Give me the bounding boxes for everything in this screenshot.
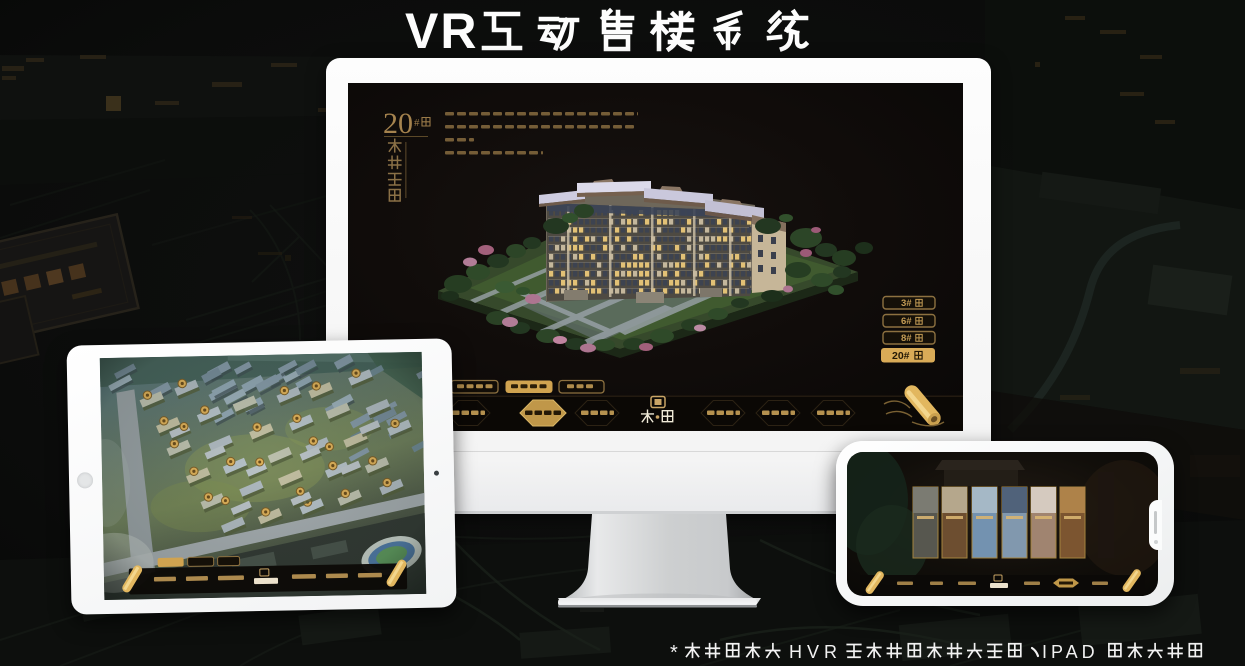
svg-text:IPAD: IPAD bbox=[1042, 642, 1099, 662]
svg-text:#: # bbox=[414, 117, 420, 129]
svg-text:VR: VR bbox=[405, 3, 478, 59]
svg-text:20#: 20# bbox=[892, 350, 910, 362]
svg-text:3#: 3# bbox=[901, 298, 912, 309]
svg-text:20: 20 bbox=[383, 107, 413, 140]
svg-text:6#: 6# bbox=[901, 316, 912, 327]
svg-text:8#: 8# bbox=[901, 333, 912, 344]
svg-text:*: * bbox=[670, 642, 678, 664]
svg-text:HVR: HVR bbox=[789, 642, 842, 662]
